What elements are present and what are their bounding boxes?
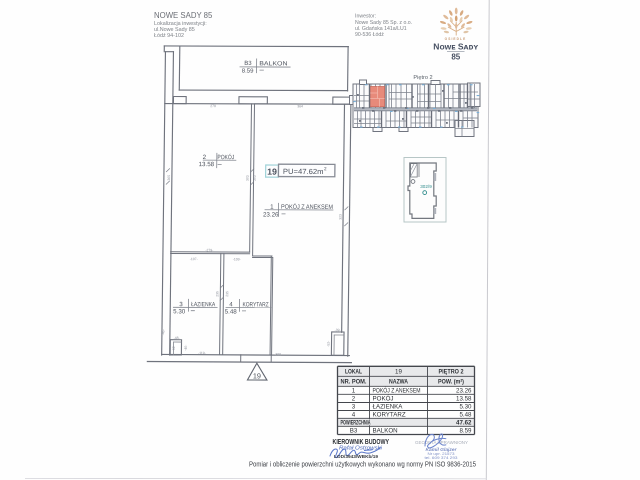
svg-text:303: 303 (246, 175, 250, 181)
svg-text:85: 85 (451, 52, 460, 61)
svg-text:19: 19 (267, 167, 277, 177)
svg-text:GEODETA UPRAWNIONY: GEODETA UPRAWNIONY (415, 440, 469, 446)
svg-text:KORYTARZ: KORYTARZ (373, 412, 406, 419)
svg-text:5.30: 5.30 (459, 404, 472, 411)
svg-text:BALKON: BALKON (373, 428, 398, 435)
svg-text:5.30: 5.30 (173, 308, 186, 315)
svg-text:Łódź 94-102: Łódź 94-102 (154, 33, 184, 39)
svg-text:90-536 Łódź: 90-536 Łódź (355, 32, 384, 38)
svg-text:POWIERZCHNIA: POWIERZCHNIA (341, 420, 371, 427)
svg-text:1: 1 (352, 388, 356, 395)
svg-text:-52-: -52- (326, 341, 330, 347)
svg-text:270: 270 (210, 104, 216, 108)
svg-text:-48-: -48- (174, 336, 180, 340)
svg-text:B3: B3 (350, 428, 358, 435)
svg-text:13.58: 13.58 (199, 161, 215, 168)
svg-text:BALKON: BALKON (259, 61, 287, 67)
svg-text:19: 19 (395, 369, 402, 376)
svg-text:tel. 609 374 293: tel. 609 374 293 (425, 456, 458, 460)
svg-text:4: 4 (352, 412, 356, 419)
svg-text:235: 235 (225, 291, 229, 297)
svg-text:365: 365 (167, 175, 171, 181)
svg-text:-119-: -119- (198, 351, 206, 355)
svg-text:303: 303 (253, 175, 257, 181)
svg-text:Pomiar i obliczenie powierzchn: Pomiar i obliczenie powierzchni użytkowy… (249, 462, 476, 469)
svg-text:LOKAL: LOKAL (345, 369, 362, 376)
svg-text:23.26: 23.26 (263, 212, 279, 219)
svg-text:POW. (m²): POW. (m²) (438, 379, 464, 386)
svg-text:5.48: 5.48 (459, 412, 472, 419)
svg-text:Piętro 2: Piętro 2 (413, 75, 432, 81)
svg-text:5.48: 5.48 (225, 308, 238, 315)
svg-text:19: 19 (253, 371, 261, 380)
svg-text:PIĘTRO 2: PIĘTRO 2 (439, 369, 464, 376)
svg-text:-62-: -62- (172, 345, 176, 351)
svg-text:LOD/3943/WBKb/19: LOD/3943/WBKb/19 (334, 454, 379, 459)
svg-text:-39-: -39- (335, 328, 341, 332)
svg-text:ŁAZIENKA: ŁAZIENKA (373, 404, 404, 411)
svg-text:POKÓJ: POKÓJ (373, 396, 394, 403)
svg-text:235: 235 (215, 291, 219, 297)
svg-text:Nᴏᴡᴇ Sᴀᴅʏ: Nᴏᴡᴇ Sᴀᴅʏ (433, 43, 478, 52)
svg-text:PU=47.62m: PU=47.62m (283, 167, 324, 176)
svg-text:2: 2 (352, 396, 356, 403)
svg-text:Inwestor:: Inwestor: (355, 14, 376, 20)
svg-text:NOWE SADY 85: NOWE SADY 85 (154, 11, 213, 20)
svg-text:-45-: -45- (161, 329, 165, 335)
svg-text:-107-: -107- (190, 257, 198, 261)
svg-text:323: 323 (338, 214, 342, 220)
svg-text:-279-: -279- (205, 248, 213, 252)
svg-text:NAZWA: NAZWA (389, 379, 408, 386)
svg-text:23.26: 23.26 (456, 388, 472, 395)
svg-text:8.59: 8.59 (242, 69, 254, 75)
svg-text:-40-: -40- (184, 345, 188, 351)
svg-text:-300-: -300- (274, 352, 282, 356)
svg-text:OSIEDLE: OSIEDLE (445, 37, 467, 41)
svg-text:NR. POM.: NR. POM. (341, 379, 367, 386)
svg-text:3: 3 (352, 404, 356, 411)
svg-text:8.59: 8.59 (459, 428, 472, 435)
svg-text:364: 364 (297, 104, 303, 108)
svg-text:13.58: 13.58 (456, 396, 472, 403)
svg-text:B3: B3 (244, 61, 252, 67)
svg-text:POKÓJ Z ANEKSEM: POKÓJ Z ANEKSEM (373, 388, 421, 395)
svg-text:47.62: 47.62 (456, 420, 472, 427)
svg-text:302/9: 302/9 (420, 184, 432, 189)
svg-text:-103-: -103- (233, 257, 241, 261)
